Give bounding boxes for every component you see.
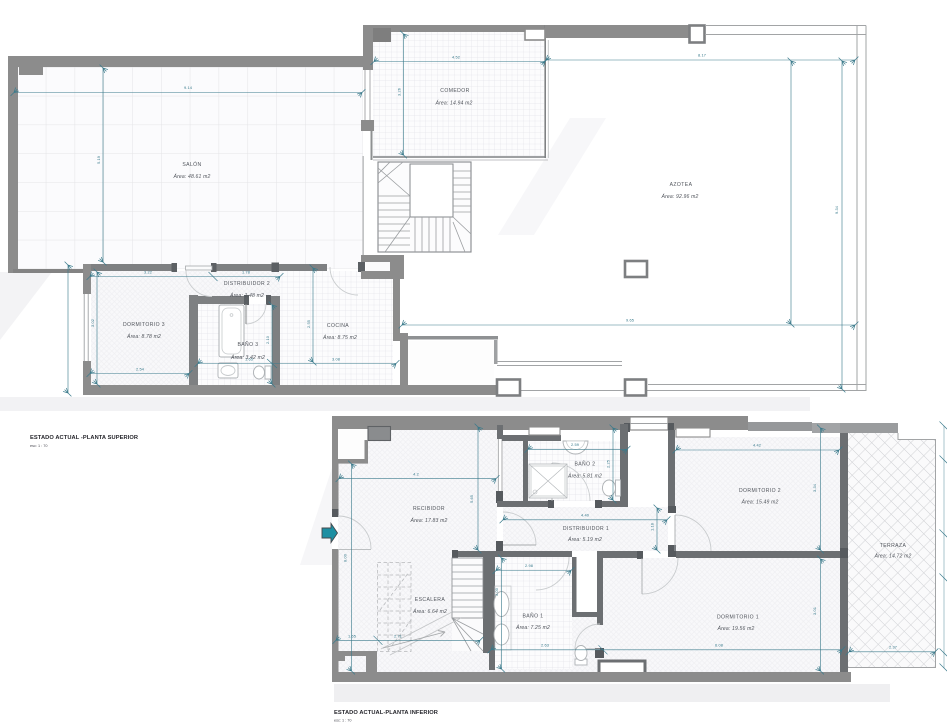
svg-text:8.00: 8.00 — [343, 553, 348, 562]
svg-text:3.26: 3.26 — [397, 88, 402, 96]
svg-text:5.19: 5.19 — [96, 156, 101, 164]
svg-text:COMEDOR: COMEDOR — [440, 88, 469, 94]
svg-text:Área: 1.48 m2: Área: 1.48 m2 — [229, 292, 264, 299]
svg-text:2.25: 2.25 — [606, 460, 611, 468]
svg-text:esc: 1 : 70: esc: 1 : 70 — [30, 444, 48, 448]
svg-text:4.2: 4.2 — [413, 472, 419, 477]
svg-text:ESTADO ACTUAL-PLANTA INFERIOR: ESTADO ACTUAL-PLANTA INFERIOR — [334, 710, 438, 716]
svg-text:4.52: 4.52 — [452, 55, 460, 60]
svg-text:Área: 17.83 m2: Área: 17.83 m2 — [410, 517, 448, 524]
svg-text:DORMITORIO 1: DORMITORIO 1 — [717, 615, 759, 621]
svg-text:3.34: 3.34 — [812, 483, 817, 492]
svg-text:BAÑO 3: BAÑO 3 — [237, 341, 258, 348]
svg-text:2.54: 2.54 — [136, 367, 145, 372]
svg-text:Área: 8.75 m2: Área: 8.75 m2 — [322, 334, 357, 341]
svg-text:SALÓN: SALÓN — [182, 161, 201, 168]
svg-text:3.00: 3.00 — [494, 587, 499, 596]
svg-text:esc: 1 : 70: esc: 1 : 70 — [334, 719, 352, 723]
svg-text:2.59: 2.59 — [571, 442, 579, 447]
svg-text:3.08: 3.08 — [332, 357, 340, 362]
svg-text:DISTRIBUIDOR 1: DISTRIBUIDOR 1 — [563, 526, 609, 532]
svg-text:BAÑO 2: BAÑO 2 — [574, 461, 595, 468]
svg-text:4.42: 4.42 — [753, 443, 761, 448]
svg-text:1.78: 1.78 — [242, 270, 250, 275]
svg-text:2.55: 2.55 — [306, 320, 311, 328]
svg-text:Área: 19.56 m2: Área: 19.56 m2 — [717, 625, 755, 632]
svg-text:Área: 6.64 m2: Área: 6.64 m2 — [412, 608, 447, 615]
svg-text:Área: 92.96 m2: Área: 92.96 m2 — [661, 193, 699, 200]
svg-text:Área: 7.25 m2: Área: 7.25 m2 — [515, 624, 550, 631]
svg-text:8.17: 8.17 — [698, 53, 706, 58]
svg-text:ESTADO ACTUAL -PLANTA SUPERIOR: ESTADO ACTUAL -PLANTA SUPERIOR — [30, 435, 138, 441]
svg-text:Área: 48.61 m2: Área: 48.61 m2 — [173, 173, 211, 180]
svg-text:2.10: 2.10 — [265, 335, 270, 344]
svg-text:COCINA: COCINA — [327, 323, 349, 329]
svg-text:Área: 3.42 m2: Área: 3.42 m2 — [230, 354, 265, 361]
svg-text:RECIBIDOR: RECIBIDOR — [413, 506, 445, 512]
svg-text:Área: 14.94 m2: Área: 14.94 m2 — [435, 100, 473, 107]
svg-text:9.34: 9.34 — [834, 205, 839, 214]
svg-text:2.71: 2.71 — [394, 633, 402, 638]
svg-text:AZOTEA: AZOTEA — [670, 182, 693, 188]
svg-text:4.40: 4.40 — [581, 513, 590, 518]
svg-text:2.37: 2.37 — [889, 644, 897, 649]
svg-text:1.18: 1.18 — [650, 523, 655, 531]
svg-text:Área: 14.72 m2: Área: 14.72 m2 — [874, 553, 912, 560]
svg-text:Área: 5.19 m2: Área: 5.19 m2 — [567, 536, 602, 543]
svg-text:DISTRIBUIDOR 2: DISTRIBUIDOR 2 — [224, 281, 270, 287]
svg-text:3.01: 3.01 — [812, 607, 817, 615]
svg-text:DORMITORIO 2: DORMITORIO 2 — [739, 488, 781, 494]
svg-text:1.65: 1.65 — [348, 633, 356, 638]
svg-text:TERRAZA: TERRAZA — [880, 543, 907, 549]
svg-text:9.14: 9.14 — [184, 85, 193, 90]
svg-text:BAÑO 1: BAÑO 1 — [522, 613, 543, 620]
svg-text:6.08: 6.08 — [715, 643, 723, 648]
svg-text:DORMITORIO 3: DORMITORIO 3 — [123, 322, 165, 328]
svg-text:2.98: 2.98 — [525, 563, 533, 568]
svg-text:3.22: 3.22 — [144, 270, 152, 275]
svg-text:5.65: 5.65 — [469, 495, 474, 503]
svg-text:Área: 15.49 m2: Área: 15.49 m2 — [741, 499, 779, 506]
svg-text:ESCALERA: ESCALERA — [415, 597, 446, 603]
svg-text:2.63: 2.63 — [541, 643, 549, 648]
svg-text:3.02: 3.02 — [90, 319, 95, 327]
svg-text:Área: 8.78 m2: Área: 8.78 m2 — [126, 333, 161, 340]
svg-text:9.65: 9.65 — [626, 318, 634, 323]
svg-text:Área: 5.81 m2: Área: 5.81 m2 — [567, 473, 602, 480]
